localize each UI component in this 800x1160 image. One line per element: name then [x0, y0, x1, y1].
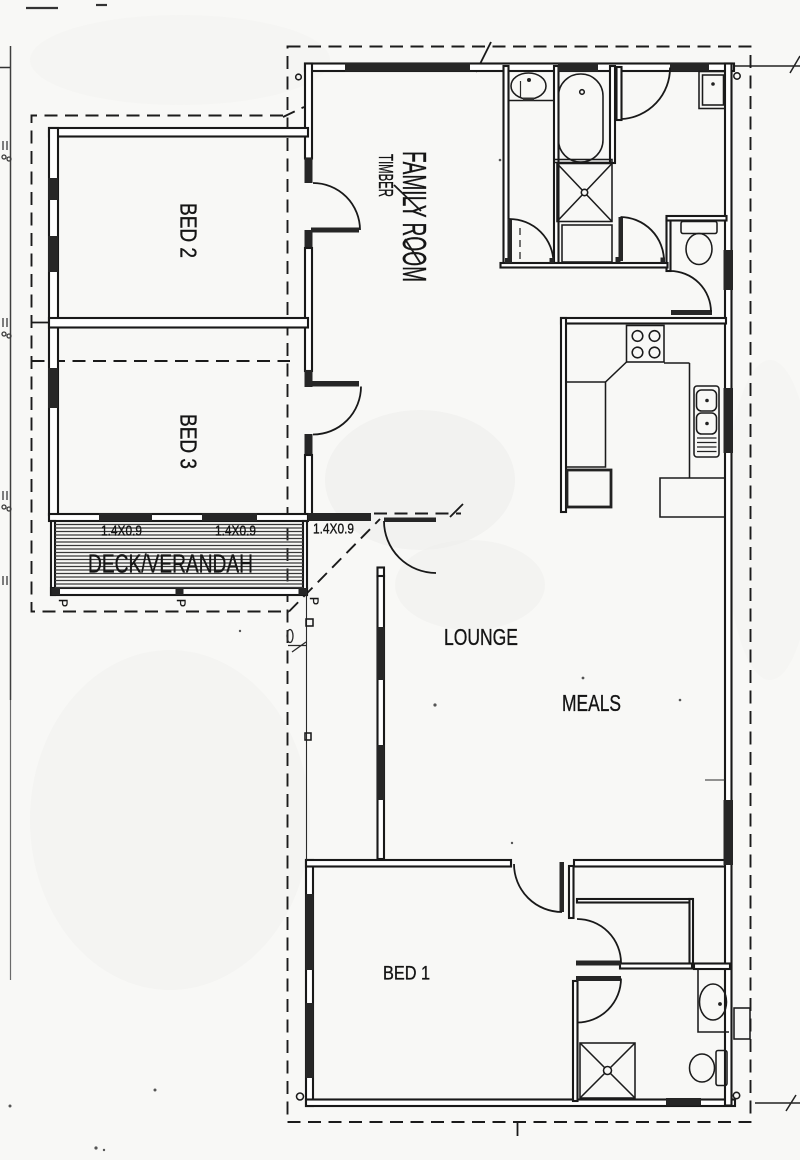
svg-text:1.4X0.9: 1.4X0.9 [313, 521, 354, 538]
svg-text:BED 3: BED 3 [176, 414, 202, 469]
svg-text:BED 2: BED 2 [176, 203, 202, 258]
svg-text:P: P [307, 597, 321, 605]
svg-text:BED 1: BED 1 [383, 964, 430, 985]
svg-text:DECK/VERANDAH: DECK/VERANDAH [88, 549, 253, 579]
svg-text:1.4X0.9: 1.4X0.9 [215, 523, 256, 540]
svg-text:P: P [56, 599, 70, 607]
svg-text:P: P [174, 599, 188, 607]
svg-text:FAMILY ROOM: FAMILY ROOM [396, 151, 433, 282]
svg-text:1.4X0.9: 1.4X0.9 [101, 523, 142, 540]
svg-text:MEALS: MEALS [562, 690, 621, 716]
svg-text:LOUNGE: LOUNGE [444, 624, 518, 650]
svg-text:TIMBER: TIMBER [374, 154, 396, 197]
